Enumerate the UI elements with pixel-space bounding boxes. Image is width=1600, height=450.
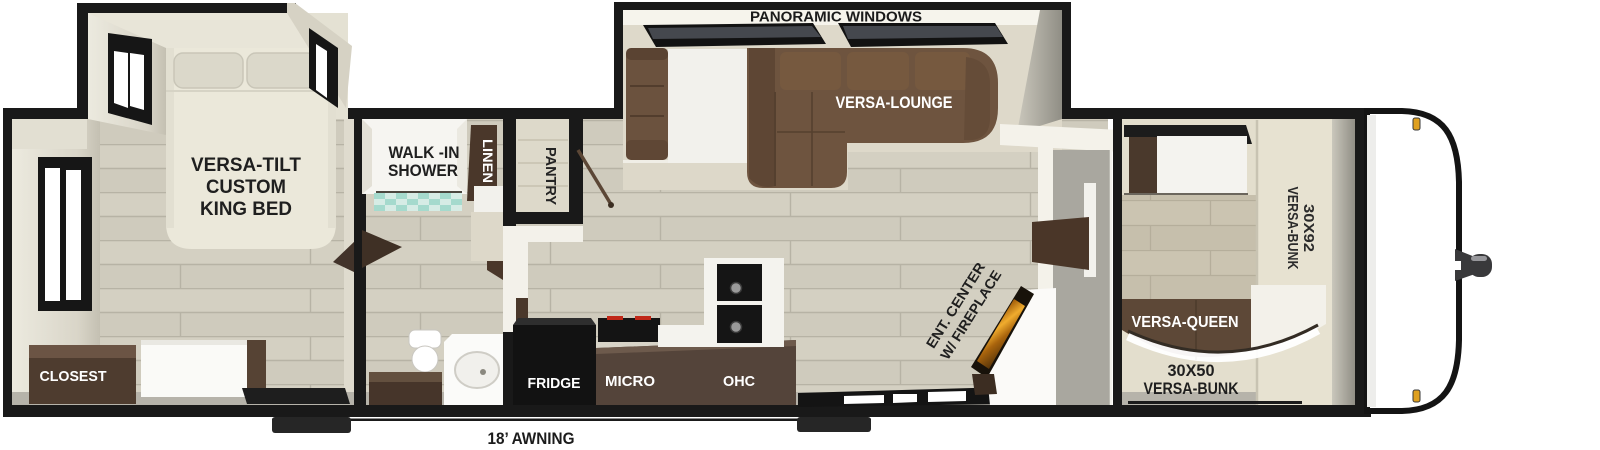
svg-text:CLOSEST: CLOSEST — [40, 368, 107, 385]
svg-text:SHOWER: SHOWER — [388, 161, 458, 180]
svg-text:VERSA-BUNK: VERSA-BUNK — [1144, 379, 1240, 398]
svg-text:LINEN: LINEN — [480, 139, 496, 183]
svg-text:30X50: 30X50 — [1168, 361, 1215, 380]
svg-text:PANTRY: PANTRY — [542, 147, 559, 205]
svg-text:18’ AWNING: 18’ AWNING — [488, 429, 575, 445]
svg-text:CUSTOM: CUSTOM — [206, 177, 286, 198]
svg-text:MICRO: MICRO — [605, 373, 655, 390]
svg-text:VERSA-TILT: VERSA-TILT — [191, 155, 301, 176]
svg-text:FRIDGE: FRIDGE — [528, 375, 581, 392]
svg-text:OHC: OHC — [723, 373, 755, 390]
svg-text:VERSA-QUEEN: VERSA-QUEEN — [1132, 314, 1239, 331]
svg-text:VERSA-LOUNGE: VERSA-LOUNGE — [836, 93, 953, 112]
svg-text:30X92: 30X92 — [1300, 204, 1317, 252]
svg-text:VERSA-BUNK: VERSA-BUNK — [1284, 187, 1301, 270]
svg-text:WALK -IN: WALK -IN — [389, 143, 460, 162]
svg-text:KING BED: KING BED — [200, 199, 292, 220]
